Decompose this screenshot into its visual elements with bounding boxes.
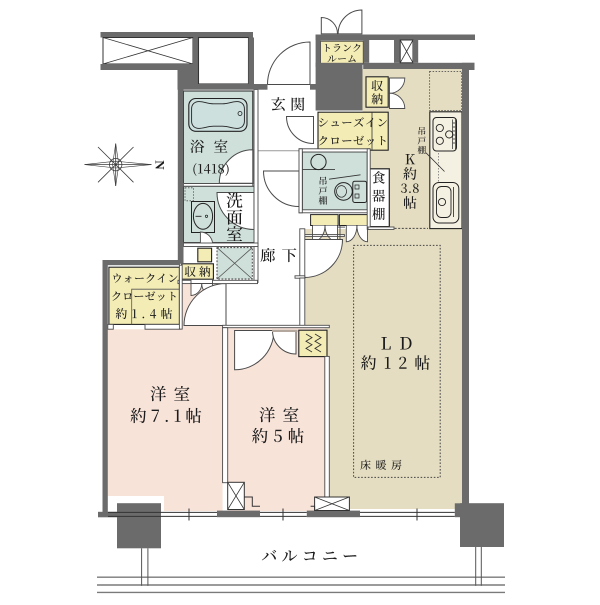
svg-text:N: N <box>153 160 168 170</box>
